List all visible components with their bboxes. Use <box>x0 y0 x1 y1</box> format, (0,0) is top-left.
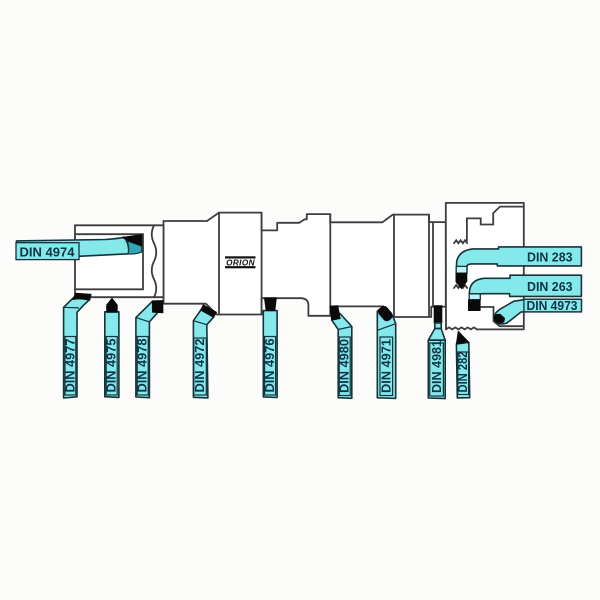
svg-text:DIN 4977: DIN 4977 <box>63 338 77 392</box>
svg-text:ORION: ORION <box>226 258 256 267</box>
svg-text:DIN 4980: DIN 4980 <box>338 339 352 393</box>
svg-text:DIN 4981: DIN 4981 <box>430 340 444 393</box>
svg-text:DIN 4978: DIN 4978 <box>136 338 150 392</box>
svg-text:DIN 4974: DIN 4974 <box>20 245 76 260</box>
svg-text:DIN 282: DIN 282 <box>456 351 470 392</box>
svg-text:DIN 4972: DIN 4972 <box>193 338 207 392</box>
svg-text:DIN 4973: DIN 4973 <box>527 298 578 313</box>
svg-text:DIN 283: DIN 283 <box>527 250 573 265</box>
svg-text:DIN 4975: DIN 4975 <box>105 338 119 392</box>
svg-text:DIN 4976: DIN 4976 <box>263 338 277 392</box>
svg-text:DIN 263: DIN 263 <box>527 279 573 294</box>
svg-text:DIN 4971: DIN 4971 <box>380 339 394 393</box>
